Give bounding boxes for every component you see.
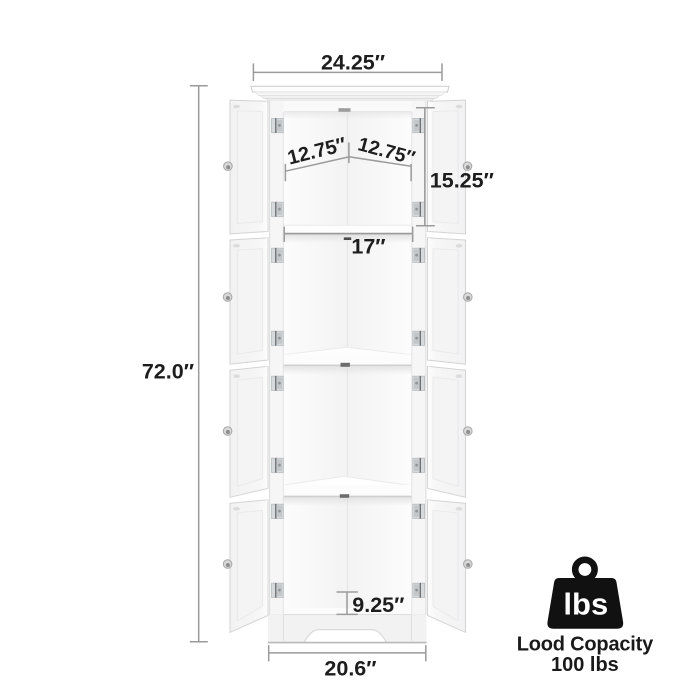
svg-text:100 lbs: 100 lbs	[551, 654, 619, 676]
svg-text:24.25″: 24.25″	[321, 51, 385, 75]
svg-text:15.25″: 15.25″	[430, 168, 494, 192]
svg-text:9.25″: 9.25″	[352, 593, 404, 617]
svg-text:17″: 17″	[351, 235, 385, 259]
svg-text:72.0″: 72.0″	[142, 360, 194, 384]
svg-text:20.6″: 20.6″	[324, 656, 376, 680]
svg-text:lbs: lbs	[563, 587, 608, 622]
svg-text:Lood Copacity: Lood Copacity	[517, 633, 654, 655]
